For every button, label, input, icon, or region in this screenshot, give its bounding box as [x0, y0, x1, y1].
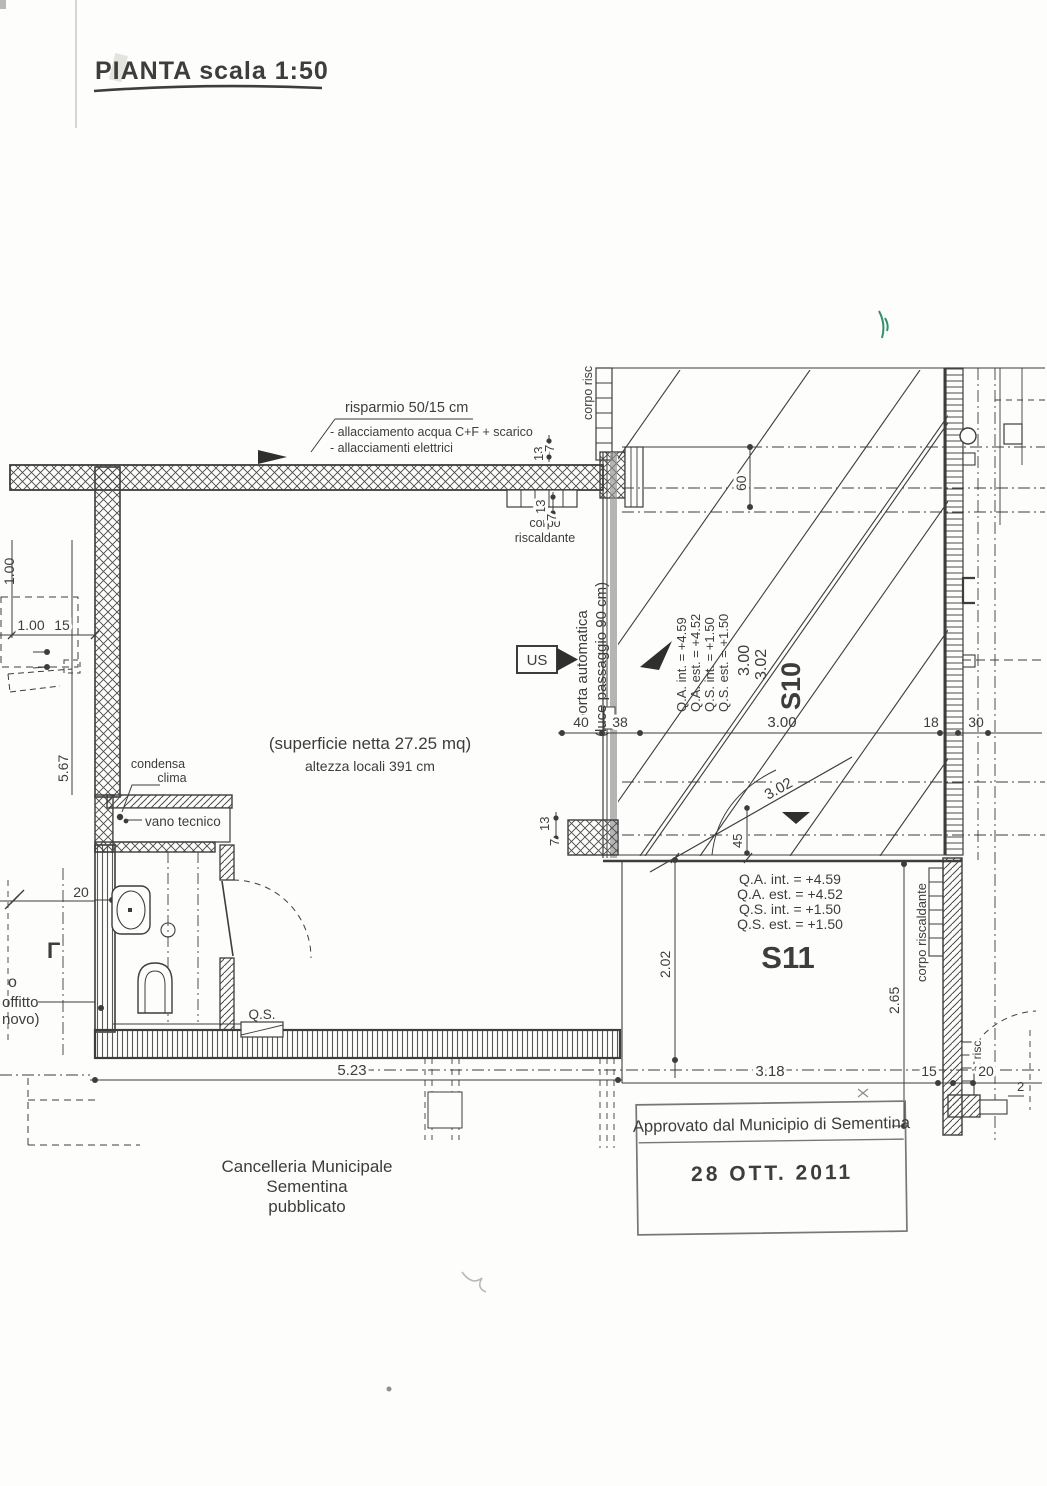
partition-wall-lower	[220, 958, 234, 1030]
s10-quote-1: Q.A. int. = +4.59	[674, 617, 689, 712]
electrical-connection-note: - allacciamenti elettrici	[330, 441, 453, 455]
room-s11: Q.A. int. = +4.59 Q.A. est. = +4.52 Q.S.…	[622, 857, 1036, 1135]
bottom-dim-lines: 5.23 3.18 15 20	[90, 1058, 1042, 1148]
vano-bottom-wall	[95, 842, 215, 852]
bottom-wall	[95, 1030, 620, 1058]
dim-20-bottom: 20	[978, 1063, 994, 1079]
column-circle	[960, 428, 976, 444]
bathroom: Q.S.	[95, 845, 311, 1037]
room-s10-label: S10	[776, 662, 806, 710]
pen-mark	[879, 311, 888, 338]
dim-30: 30	[968, 714, 984, 730]
dim-15-bottom: 15	[921, 1063, 937, 1079]
slope-arrow-upper	[640, 641, 672, 670]
s11-quote-3: Q.S. int. = +1.50	[739, 901, 841, 917]
wall-bracket	[963, 578, 975, 603]
height-label: altezza locali 391 cm	[305, 758, 435, 774]
page-title: PIANTA scala 1:50	[95, 57, 329, 85]
s10-quote-3: Q.S. int. = +1.50	[702, 617, 717, 712]
dim-13c: 13	[537, 817, 552, 831]
dim-18: 18	[923, 714, 939, 730]
porta-automatica-label: porta automatica	[574, 610, 591, 722]
room-labels: (superficie netta 27.25 mq) altezza loca…	[269, 734, 471, 774]
top-wall-details: corpo risc corpo riscaldante 13 7 13 7	[507, 366, 643, 545]
s11-quote-2: Q.A. est. = +4.52	[737, 886, 843, 902]
floor-plan-page: PIANTA scala 1:50 1.00 1.00 15 5.67 20 Γ…	[0, 0, 1047, 1486]
slope-arrow-lower	[782, 812, 810, 824]
dim-2-partial: 2	[1017, 1079, 1024, 1094]
title-block: PIANTA scala 1:50	[94, 57, 329, 91]
door-side-wall	[568, 820, 618, 855]
edge-mark: Γ	[47, 938, 60, 963]
s10-width-label: 3.00	[736, 645, 753, 676]
wall-marker-triangle	[258, 450, 287, 464]
dim-7b: 7	[544, 514, 559, 521]
dim-line-door: 40 38 3.00 18 30	[558, 714, 1042, 736]
partition-wall-upper	[220, 845, 234, 880]
radiator-top	[596, 368, 612, 460]
dim-38: 38	[612, 714, 628, 730]
s10-quote-4: Q.S. est. = +1.50	[716, 614, 731, 712]
top-annotations: risparmio 50/15 cm - allacciamento acqua…	[311, 400, 533, 455]
dim-318: 3.18	[755, 1063, 784, 1080]
approval-stamp: Approvato dal Municipio di Sementina 28 …	[633, 1101, 913, 1235]
edge-fragment-2: offitto	[2, 994, 38, 1011]
net-area-label: (superficie netta 27.25 mq)	[269, 734, 471, 753]
corpo-risc-short-label: corpo risc	[581, 366, 595, 420]
office-line-1: Cancelleria Municipale	[221, 1157, 392, 1176]
dim-15: 15	[54, 617, 70, 633]
qs-box	[241, 1022, 283, 1037]
dim-265: 2.65	[886, 987, 902, 1014]
condensa-symbol	[117, 814, 123, 820]
water-connection-note: - allacciamento acqua C+F + scarico	[330, 425, 533, 439]
corpo-label-line2: riscaldante	[515, 531, 575, 545]
room-s11-label: S11	[761, 940, 814, 975]
dim-40: 40	[573, 714, 589, 730]
exterior-wall-band	[946, 368, 963, 855]
condensa-label-line2: clima	[157, 771, 186, 785]
left-wall-existing	[95, 845, 115, 1032]
vano-tecnico-label: vano tecnico	[145, 814, 221, 829]
office-line-3: pubblicato	[268, 1197, 346, 1216]
dim-100-vertical: 1.00	[1, 558, 17, 585]
s11-quote-1: Q.A. int. = +4.59	[739, 871, 841, 887]
edge-fragment-1: o	[8, 974, 17, 991]
dim-100-horizontal: 1.00	[17, 617, 44, 633]
approval-date: 28 OTT. 2011	[691, 1161, 853, 1186]
dim-13b: 13	[533, 500, 548, 514]
s10-quote-2: Q.A. est. = +4.52	[688, 614, 703, 712]
edge-fragment-3: novo)	[2, 1011, 40, 1028]
right-exterior-wall	[603, 368, 1045, 1140]
dim-300: 3.00	[767, 714, 796, 731]
risparmio-note: risparmio 50/15 cm	[345, 400, 468, 416]
exit-us-label: US	[527, 652, 548, 669]
door-track	[610, 452, 617, 858]
s10-width2-label: 3.02	[753, 649, 770, 680]
dim-20: 20	[73, 884, 89, 900]
dim-45: 45	[730, 834, 745, 848]
dim-567: 5.67	[55, 755, 71, 782]
s11-right-wall	[943, 858, 962, 1135]
bathroom-door-leaf	[222, 881, 233, 956]
s11-radiator	[929, 868, 943, 956]
corpo-riscaldante-right-label: corpo riscaldante	[914, 883, 929, 982]
s11-door-swing	[984, 1011, 1036, 1034]
dim-7a: 7	[542, 445, 557, 452]
dim-7c: 7	[547, 839, 562, 846]
office-line-2: Sementina	[266, 1177, 348, 1196]
porta-automatica-sublabel: (luce passaggio 90 cm)	[593, 582, 610, 737]
dim-523: 5.23	[337, 1062, 366, 1079]
condensa-label-line1: condensa	[131, 757, 185, 771]
dim-60: 60	[733, 475, 749, 491]
left-wall-new	[95, 467, 120, 797]
qs-label: Q.S.	[248, 1007, 275, 1022]
dim-202: 2.02	[657, 951, 673, 978]
floor-plan-drawing: PIANTA scala 1:50 1.00 1.00 15 5.67 20 Γ…	[0, 0, 1047, 1486]
s11-quote-4: Q.S. est. = +1.50	[737, 916, 843, 932]
office-stamp: Cancelleria Municipale Sementina pubblic…	[221, 1157, 392, 1216]
bathroom-door-swing	[233, 880, 311, 958]
title-underline	[94, 86, 322, 91]
approval-text: Approvato dal Municipio di Sementina	[633, 1114, 911, 1136]
